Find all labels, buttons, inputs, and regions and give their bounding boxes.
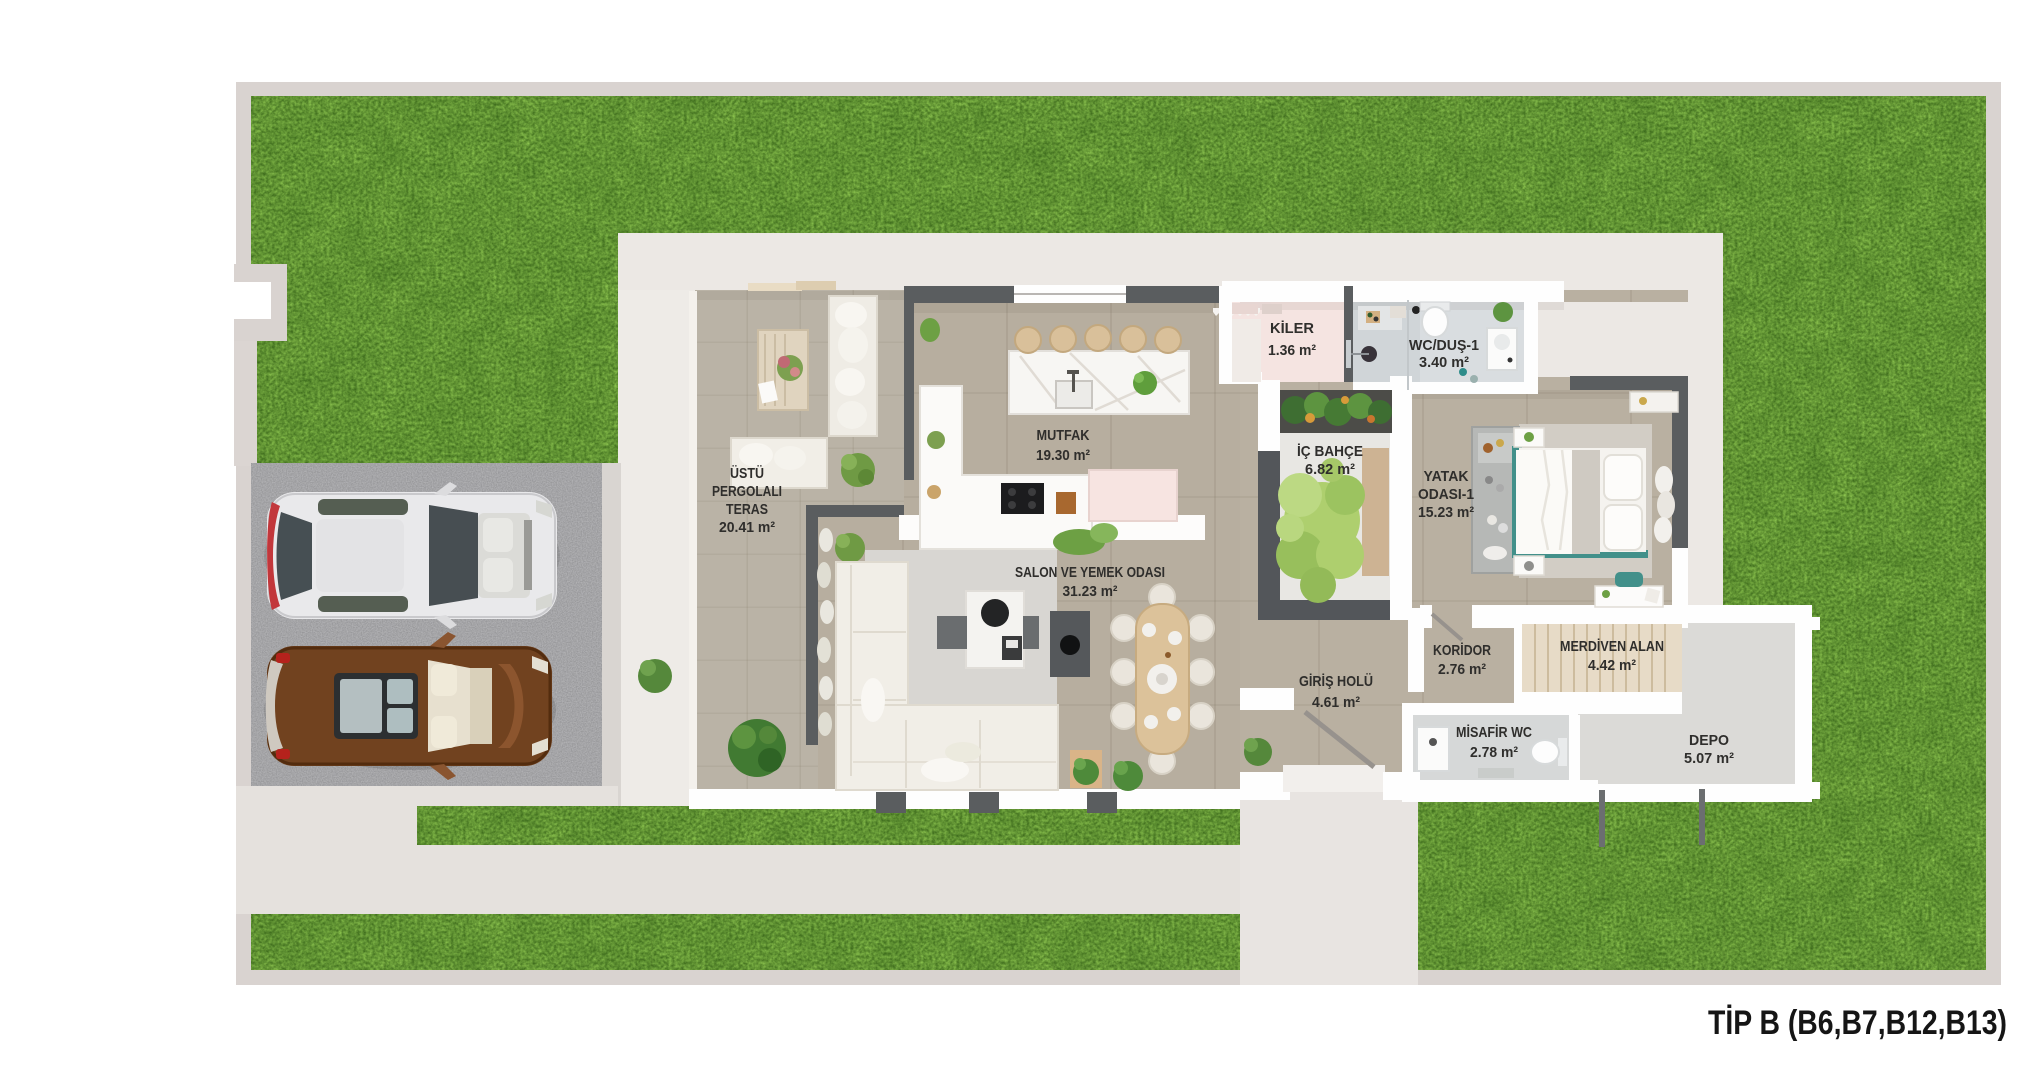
svg-text:20.41 m²: 20.41 m² <box>719 519 775 536</box>
svg-text:31.23 m²: 31.23 m² <box>1063 583 1118 600</box>
svg-text:SALON VE YEMEK ODASI: SALON VE YEMEK ODASI <box>1015 564 1165 581</box>
svg-text:5.07 m²: 5.07 m² <box>1684 750 1734 767</box>
svg-text:19.30 m²: 19.30 m² <box>1036 447 1090 464</box>
svg-text:2.78 m²: 2.78 m² <box>1470 744 1518 761</box>
svg-text:YATAK: YATAK <box>1424 468 1469 485</box>
svg-text:İÇ BAHÇE: İÇ BAHÇE <box>1297 443 1363 460</box>
svg-text:WC/DUŞ-1: WC/DUŞ-1 <box>1409 337 1479 354</box>
svg-text:15.23 m²: 15.23 m² <box>1418 504 1474 521</box>
svg-text:4.42 m²: 4.42 m² <box>1588 657 1636 674</box>
svg-text:DEPO: DEPO <box>1689 732 1729 749</box>
svg-text:KORİDOR: KORİDOR <box>1433 642 1491 659</box>
svg-text:6.82 m²: 6.82 m² <box>1305 461 1355 478</box>
svg-text:ÜSTÜ: ÜSTÜ <box>730 465 764 482</box>
svg-text:3.40 m²: 3.40 m² <box>1419 354 1469 371</box>
svg-text:1.36 m²: 1.36 m² <box>1268 342 1316 359</box>
svg-text:GİRİŞ HOLÜ: GİRİŞ HOLÜ <box>1299 673 1373 690</box>
svg-text:MİSAFİR WC: MİSAFİR WC <box>1456 724 1532 741</box>
svg-text:MERDİVEN ALAN: MERDİVEN ALAN <box>1560 638 1664 655</box>
svg-text:KİLER: KİLER <box>1270 320 1314 337</box>
svg-text:TİP B (B6,B7,B12,B13): TİP B (B6,B7,B12,B13) <box>1708 1004 2007 1042</box>
svg-text:4.61 m²: 4.61 m² <box>1312 694 1360 711</box>
svg-text:PERGOLALI: PERGOLALI <box>712 483 782 500</box>
svg-text:ODASI-1: ODASI-1 <box>1418 486 1474 503</box>
svg-text:2.76 m²: 2.76 m² <box>1438 661 1486 678</box>
svg-text:MUTFAK: MUTFAK <box>1037 427 1090 444</box>
svg-text:TERAS: TERAS <box>726 501 768 518</box>
